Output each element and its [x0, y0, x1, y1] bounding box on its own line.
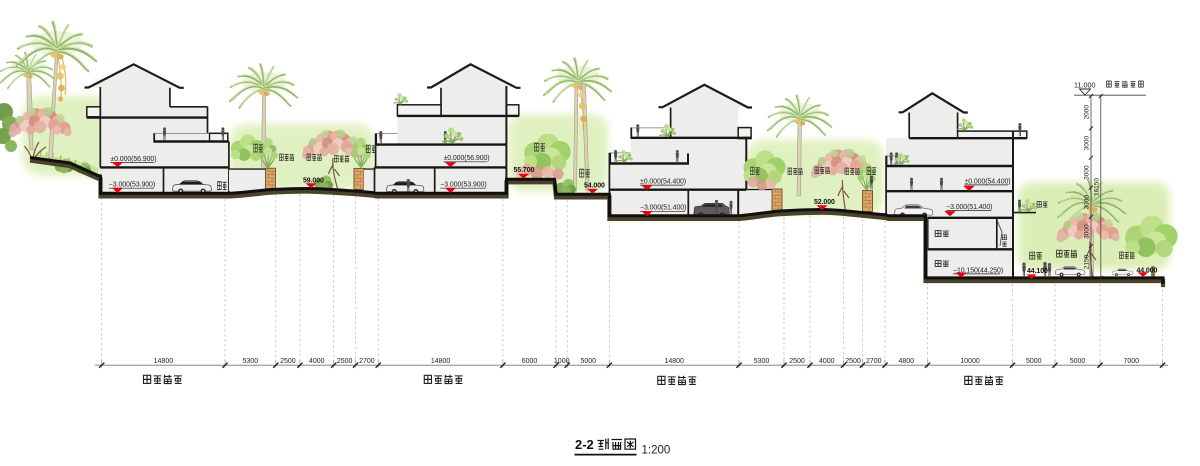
svg-text:−3.000(51.400): −3.000(51.400) — [640, 205, 686, 212]
svg-text:52.000: 52.000 — [814, 199, 835, 206]
svg-text:2-2: 2-2 — [575, 437, 594, 452]
svg-text:3000: 3000 — [1084, 195, 1091, 210]
svg-text:±0.000(56.900): ±0.000(56.900) — [110, 156, 156, 163]
svg-text:6000: 6000 — [522, 358, 538, 365]
svg-text:2500: 2500 — [789, 358, 805, 365]
svg-text:−3.000(53.900): −3.000(53.900) — [440, 182, 486, 189]
svg-text:14800: 14800 — [664, 358, 684, 365]
svg-text:−3.000(51.400): −3.000(51.400) — [946, 204, 992, 211]
svg-text:2500: 2500 — [337, 358, 353, 365]
svg-text:54.000: 54.000 — [584, 182, 605, 189]
svg-text:14800: 14800 — [431, 358, 451, 365]
svg-text:2500: 2500 — [280, 358, 296, 365]
svg-text:±0.000(54.400): ±0.000(54.400) — [640, 179, 686, 186]
svg-text:55.700: 55.700 — [514, 167, 535, 174]
svg-text:5300: 5300 — [243, 358, 259, 365]
svg-text:5000: 5000 — [581, 358, 597, 365]
svg-text:3000: 3000 — [1084, 165, 1091, 180]
svg-text:5000: 5000 — [1026, 358, 1042, 365]
svg-text:59.000: 59.000 — [303, 177, 324, 184]
svg-text:10000: 10000 — [960, 358, 980, 365]
svg-text:2700: 2700 — [866, 358, 882, 365]
svg-text:3000: 3000 — [1084, 135, 1091, 150]
svg-text:14800: 14800 — [154, 358, 174, 365]
svg-text:2150: 2150 — [1084, 254, 1091, 269]
svg-text:−3.000(53.900): −3.000(53.900) — [109, 182, 155, 189]
svg-text:4000: 4000 — [309, 358, 325, 365]
svg-text:1000: 1000 — [554, 358, 570, 365]
svg-text:16150: 16150 — [1093, 178, 1100, 196]
svg-text:3000: 3000 — [1084, 224, 1091, 239]
svg-text:5000: 5000 — [1070, 358, 1086, 365]
svg-text:5300: 5300 — [754, 358, 770, 365]
svg-text:±0.000(54.400): ±0.000(54.400) — [965, 178, 1011, 185]
svg-text:2500: 2500 — [845, 358, 861, 365]
svg-text:1:200: 1:200 — [642, 445, 671, 457]
svg-text:2000: 2000 — [1084, 105, 1091, 120]
svg-text:4000: 4000 — [819, 358, 835, 365]
svg-text:7000: 7000 — [1124, 358, 1140, 365]
svg-text:2700: 2700 — [359, 358, 375, 365]
svg-text:±0.000(56.900): ±0.000(56.900) — [444, 155, 490, 162]
svg-text:11.000: 11.000 — [1074, 81, 1095, 90]
svg-text:44.100: 44.100 — [1027, 268, 1048, 275]
svg-text:4800: 4800 — [899, 358, 915, 365]
